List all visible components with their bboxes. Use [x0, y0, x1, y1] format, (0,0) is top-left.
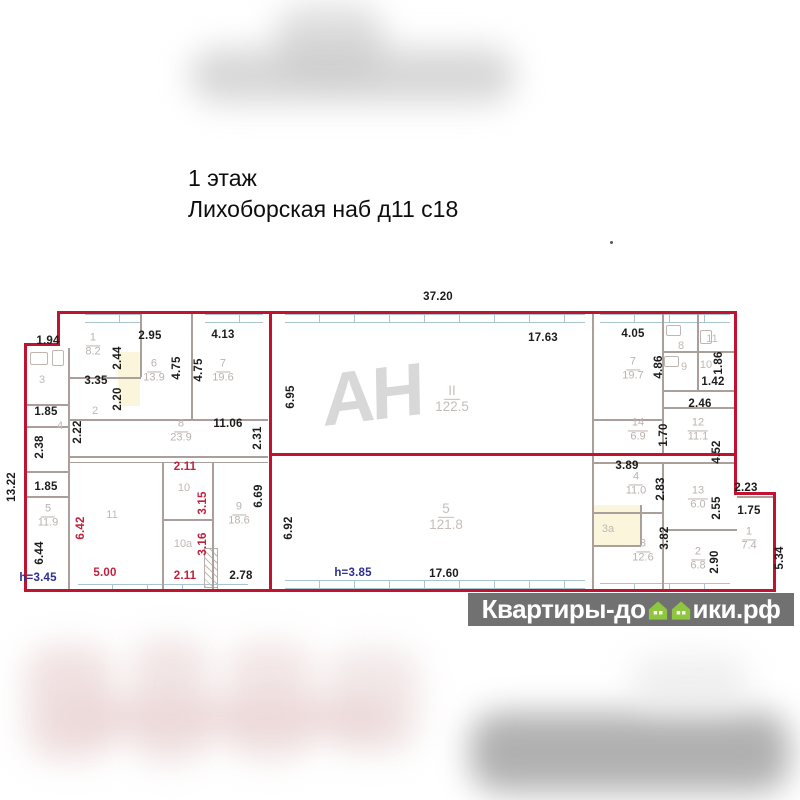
room-area: 19.6	[212, 372, 233, 384]
wall	[24, 471, 68, 473]
sink-fixture	[664, 356, 679, 367]
dimension-label: 1.75	[737, 505, 760, 517]
dimension-label: 2.23	[734, 482, 757, 494]
room-number: 1	[86, 332, 100, 346]
room-number: 14	[628, 417, 648, 431]
dimension-label: 6.95	[285, 385, 297, 408]
room-number: 4	[629, 471, 643, 485]
window-strip	[85, 314, 140, 323]
scanned-floor-plan-page: 1 этаж Лихоборская наб д11 с18	[0, 0, 800, 800]
outline-divider-vertical	[269, 311, 272, 592]
dimension-label: 1.86	[713, 351, 725, 374]
dimension-label: 3.35	[84, 375, 107, 387]
ceiling-height-label: h=3.45	[19, 572, 56, 584]
sink-fixture	[30, 352, 48, 365]
dimension-label: 5.34	[774, 546, 786, 569]
dimension-label: 2.11	[174, 570, 197, 582]
dimension-label: 6.44	[34, 541, 46, 564]
wall	[162, 463, 164, 589]
room-area: 19.7	[622, 370, 643, 382]
house-icon	[669, 599, 693, 622]
wall	[24, 496, 68, 498]
dimension-label: 2.44	[112, 346, 124, 369]
wall	[662, 351, 737, 353]
room-label: 613.9	[143, 358, 164, 383]
dimension-label: 4.05	[621, 328, 644, 340]
room-area: 11.9	[38, 517, 59, 529]
dimension-label: 1.94	[36, 335, 59, 347]
house-icon	[646, 599, 670, 622]
room-label: 312.6	[632, 538, 653, 563]
blur-blob	[55, 700, 395, 735]
room-area: 18.6	[228, 515, 249, 527]
wall	[662, 390, 737, 392]
room-label: 719.7	[622, 356, 643, 381]
wall	[68, 462, 268, 463]
room-number: 2	[691, 546, 705, 560]
room-number: 10	[700, 359, 712, 371]
room-number: 3а	[602, 523, 614, 535]
room-number: 9	[681, 361, 687, 373]
dimension-label: 2.90	[709, 550, 721, 573]
dimension-label: 4.86	[653, 355, 665, 378]
wall	[212, 463, 214, 589]
room-label: 18.2	[85, 332, 100, 357]
room-area: 12.6	[632, 552, 653, 564]
room-number: 9	[232, 501, 246, 515]
dimension-label: 37.20	[423, 291, 453, 303]
dimension-label: 4.75	[171, 356, 183, 379]
watermark-text-suffix: ики.рф	[693, 594, 781, 625]
room-number: 5	[41, 503, 55, 517]
room-number: 6	[147, 358, 161, 372]
room-number: 5	[438, 502, 454, 518]
room-number: 11	[106, 509, 117, 521]
dimension-label: 11.06	[213, 418, 242, 430]
room-number: 1	[742, 526, 756, 540]
room-area: 11.0	[626, 485, 647, 497]
dimension-label: 1.70	[658, 423, 670, 446]
dimension-label: 3.16	[197, 532, 209, 555]
room-number: 13	[688, 485, 708, 499]
room-label: 511.9	[38, 503, 59, 528]
wall	[737, 496, 773, 498]
wall	[662, 529, 737, 531]
ceiling-height-label: h=3.85	[334, 567, 371, 579]
wall	[68, 348, 70, 589]
room-area: 13.9	[143, 372, 164, 384]
room-number: 10а	[174, 538, 192, 550]
room-label: 17.4	[741, 526, 756, 551]
outline-divider-horizontal	[269, 453, 737, 456]
sink-fixture	[666, 325, 681, 336]
room-area: 6.0	[688, 499, 708, 511]
dimension-label: 13.22	[6, 472, 18, 502]
room-number: 7	[626, 356, 640, 370]
room-area: 6.8	[690, 560, 705, 572]
room-label: 918.6	[228, 501, 249, 526]
room-area: 7.4	[741, 540, 756, 552]
room-number: 2	[92, 405, 98, 417]
room-label: 1211.1	[688, 417, 709, 442]
room-area: 8.2	[85, 346, 100, 358]
room-label: 146.9	[628, 417, 648, 442]
dimension-label: 5.00	[93, 567, 116, 579]
room-label: 5121.8	[429, 502, 463, 532]
room-area: 6.9	[628, 431, 648, 443]
dimension-label: 6.92	[283, 516, 295, 539]
outline-right-lower	[773, 492, 776, 592]
outline-left	[24, 343, 27, 592]
room-number: 3	[636, 538, 650, 552]
room-area: 23.9	[170, 432, 191, 444]
dimension-label: 1.42	[701, 376, 724, 388]
site-watermark-band: Квартиры-до ики.рф	[468, 593, 794, 626]
wall	[140, 314, 142, 377]
wall	[68, 456, 268, 458]
wall	[162, 519, 212, 521]
dimension-label: 1.85	[34, 481, 57, 493]
dimension-label: 2.31	[252, 426, 264, 449]
room-number: 11	[706, 333, 717, 345]
window-strip	[285, 580, 585, 589]
room-label: II122.5	[435, 384, 469, 414]
dimension-label: 2.78	[229, 570, 252, 582]
room-number: 4	[57, 420, 63, 432]
dimension-label: 2.95	[138, 330, 161, 342]
room-label: 719.6	[212, 358, 233, 383]
dimension-label: 6.42	[75, 516, 87, 539]
wall	[592, 311, 594, 589]
room-number: 8	[174, 418, 188, 432]
dimension-label: 17.60	[429, 568, 459, 580]
window-strip	[205, 314, 263, 323]
room-area: 11.1	[688, 431, 709, 443]
dimension-label: 2.11	[174, 461, 197, 473]
dimension-label: 2.22	[72, 420, 84, 443]
dimension-label: 3.82	[659, 526, 671, 549]
dimension-label: 2.20	[112, 387, 124, 410]
dimension-label: 2.55	[711, 496, 723, 519]
dimension-label: 4.75	[193, 358, 205, 381]
dimension-label: 1.85	[34, 406, 57, 418]
outline-right-upper	[734, 311, 737, 495]
wall	[592, 512, 663, 514]
dimension-label: 4.52	[711, 440, 723, 463]
blur-blob	[470, 712, 790, 792]
agency-watermark: АН	[322, 346, 422, 444]
room-number: II	[444, 384, 460, 400]
room-number: 10	[178, 482, 190, 494]
outline-top	[57, 311, 737, 314]
room-label: 823.9	[170, 418, 191, 443]
blur-blob	[630, 655, 750, 710]
room-number: 8	[678, 340, 684, 352]
dimension-label: 2.83	[655, 477, 667, 500]
room-area: 122.5	[435, 400, 469, 414]
window-strip	[600, 314, 730, 323]
dimension-label: 17.63	[528, 332, 558, 344]
outline-bottom	[24, 589, 776, 592]
room-label: 411.0	[626, 471, 647, 496]
dimension-label: 2.46	[688, 398, 711, 410]
window-strip	[285, 314, 585, 323]
room-area: 121.8	[429, 518, 463, 532]
dimension-label: 3.15	[197, 491, 209, 514]
watermark-text-prefix: Квартиры-до	[482, 594, 646, 625]
room-number: 7	[216, 358, 230, 372]
room-number: 12	[688, 417, 708, 431]
room-label: 136.0	[688, 485, 708, 510]
room-number: 3	[39, 374, 45, 386]
toilet-fixture	[52, 350, 64, 366]
dimension-label: 4.13	[211, 329, 234, 341]
dimension-label: 6.69	[253, 484, 265, 507]
room-label: 26.8	[690, 546, 705, 571]
dimension-label: 2.38	[34, 435, 46, 458]
